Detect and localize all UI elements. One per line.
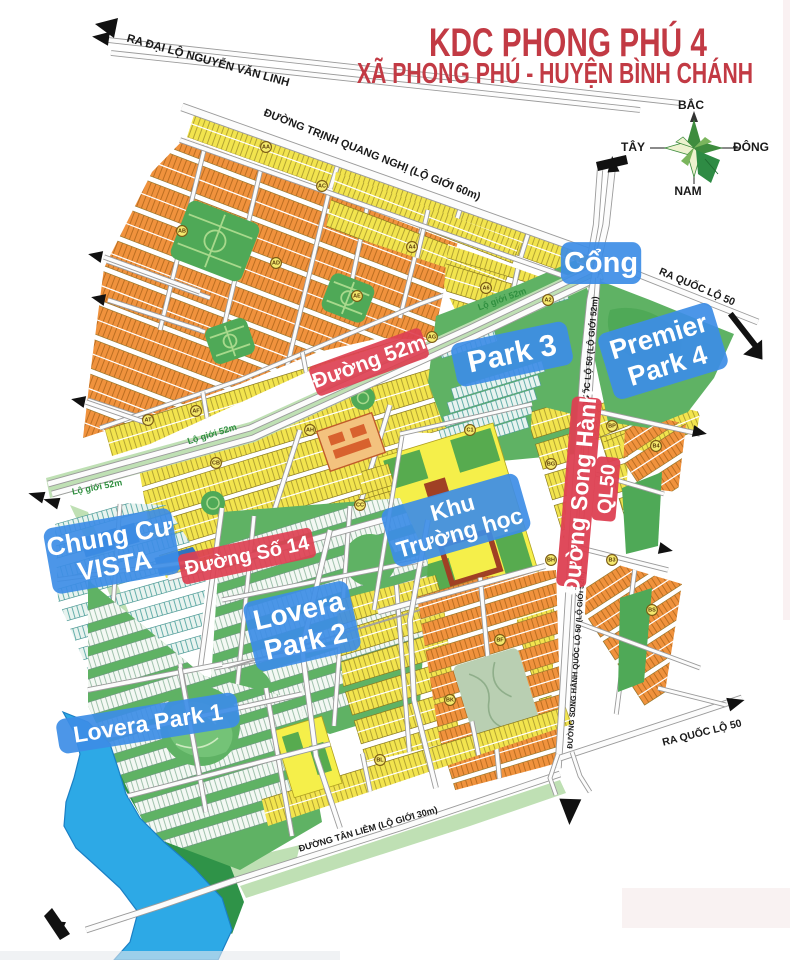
svg-text:ĐÔNG: ĐÔNG (733, 139, 769, 154)
svg-text:QL50: QL50 (594, 463, 620, 515)
svg-text:AC: AC (318, 184, 326, 190)
svg-text:AB: AB (178, 229, 186, 235)
svg-text:BH: BH (547, 558, 555, 564)
svg-text:BL: BL (376, 758, 384, 764)
svg-text:AD: AD (272, 261, 280, 267)
svg-text:TÂY: TÂY (621, 139, 645, 154)
svg-text:BK: BK (446, 698, 454, 704)
svg-text:NAM: NAM (674, 184, 701, 198)
svg-text:AE: AE (353, 294, 361, 300)
svg-text:BẮC: BẮC (678, 97, 704, 112)
svg-text:AF: AF (192, 409, 200, 415)
svg-text:AH: AH (306, 428, 314, 434)
svg-text:BS: BS (648, 608, 656, 614)
svg-text:BF: BF (496, 638, 504, 644)
svg-text:CB: CB (212, 461, 220, 467)
svg-text:AT: AT (145, 418, 153, 424)
svg-text:AG: AG (428, 335, 436, 341)
svg-text:B4: B4 (652, 444, 660, 450)
svg-text:A2: A2 (544, 298, 551, 304)
svg-text:Cổng: Cổng (564, 247, 638, 279)
svg-text:BG: BG (547, 462, 555, 468)
svg-text:CC: CC (356, 503, 364, 509)
svg-text:B3: B3 (608, 558, 615, 564)
svg-text:C1: C1 (466, 428, 473, 434)
svg-text:A6: A6 (482, 286, 489, 292)
svg-text:BP: BP (608, 424, 616, 430)
svg-text:XÃ PHONG PHÚ - HUYỆN BÌNH CHÁN: XÃ PHONG PHÚ - HUYỆN BÌNH CHÁNH (357, 56, 753, 90)
svg-text:A4: A4 (408, 245, 416, 251)
svg-text:AA: AA (262, 145, 270, 151)
